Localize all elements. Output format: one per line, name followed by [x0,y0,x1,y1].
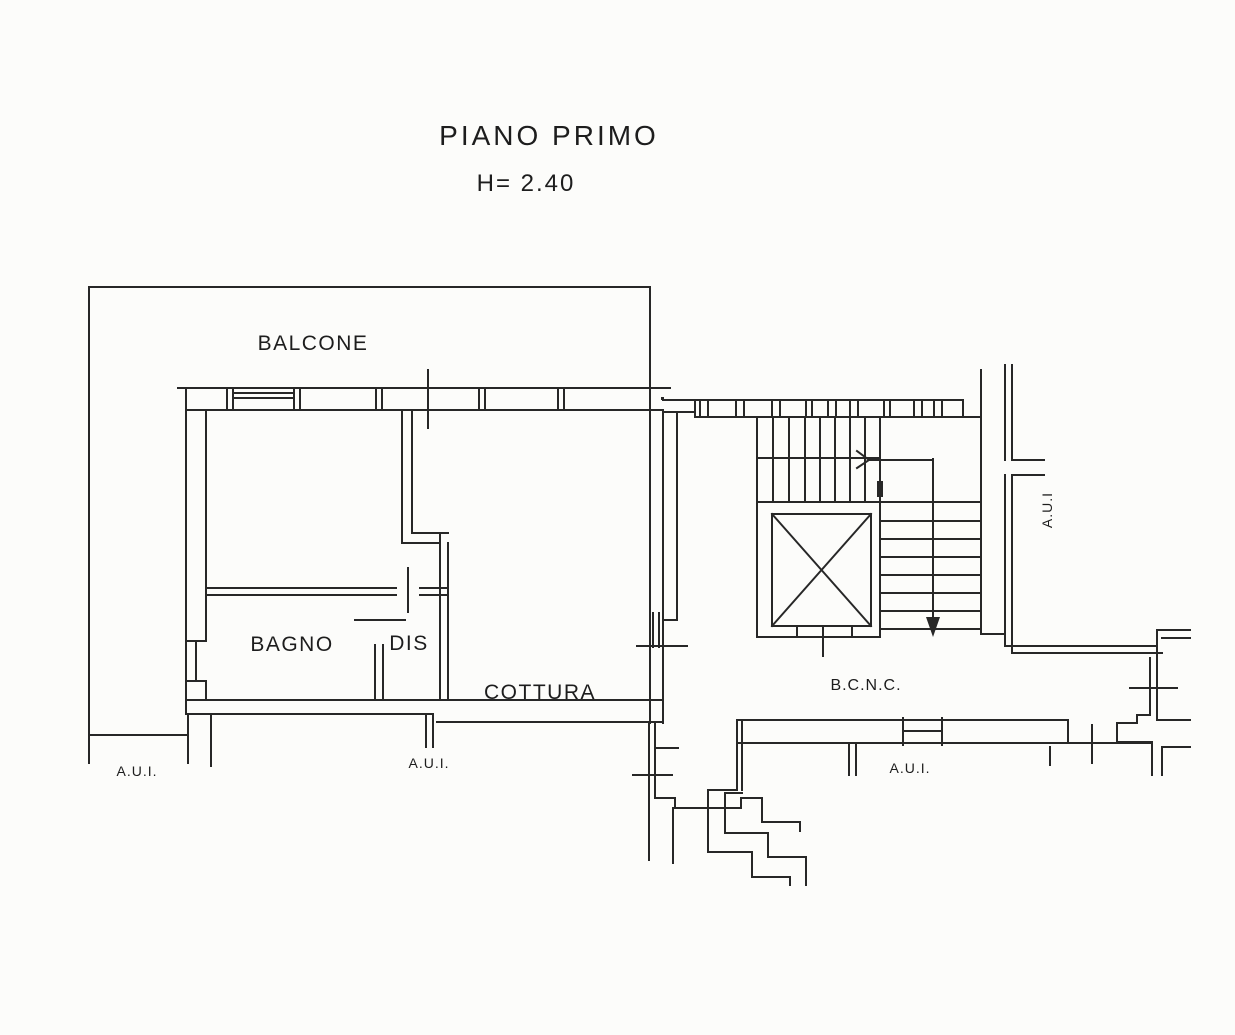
stairwell-window-band [663,400,981,417]
apartment-top-wall [178,370,670,428]
annotation-aui-middle: A.U.I. [408,755,449,771]
room-label-bcnc: B.C.N.C. [830,677,901,695]
stair-direction-arrow [857,451,940,637]
room-label-dis: DIS [389,632,429,656]
elevator-cross-icon [772,514,871,626]
page-title: PIANO PRIMO [439,120,659,152]
elevator-shaft [757,502,880,656]
annotation-aui-bottom-right: A.U.I. [889,760,930,776]
annotation-aui-right-vertical: A.U.I [1039,492,1055,528]
apartment-left-wall [186,388,206,714]
apartment-right-wall [637,410,687,723]
room-label-cottura: COTTURA [484,681,596,705]
height-note: H= 2.40 [477,170,576,198]
floor-plan-page: PIANO PRIMO H= 2.40 BALCONE BAGNO DIS CO… [0,0,1235,1035]
bcnc-corridor [737,630,1190,775]
room-label-balcone: BALCONE [258,332,369,356]
stairwell-right-wall [981,365,1044,653]
room-label-bagno: BAGNO [250,633,333,657]
annotation-aui-left: A.U.I. [116,763,157,779]
entrance-steps [633,720,806,885]
